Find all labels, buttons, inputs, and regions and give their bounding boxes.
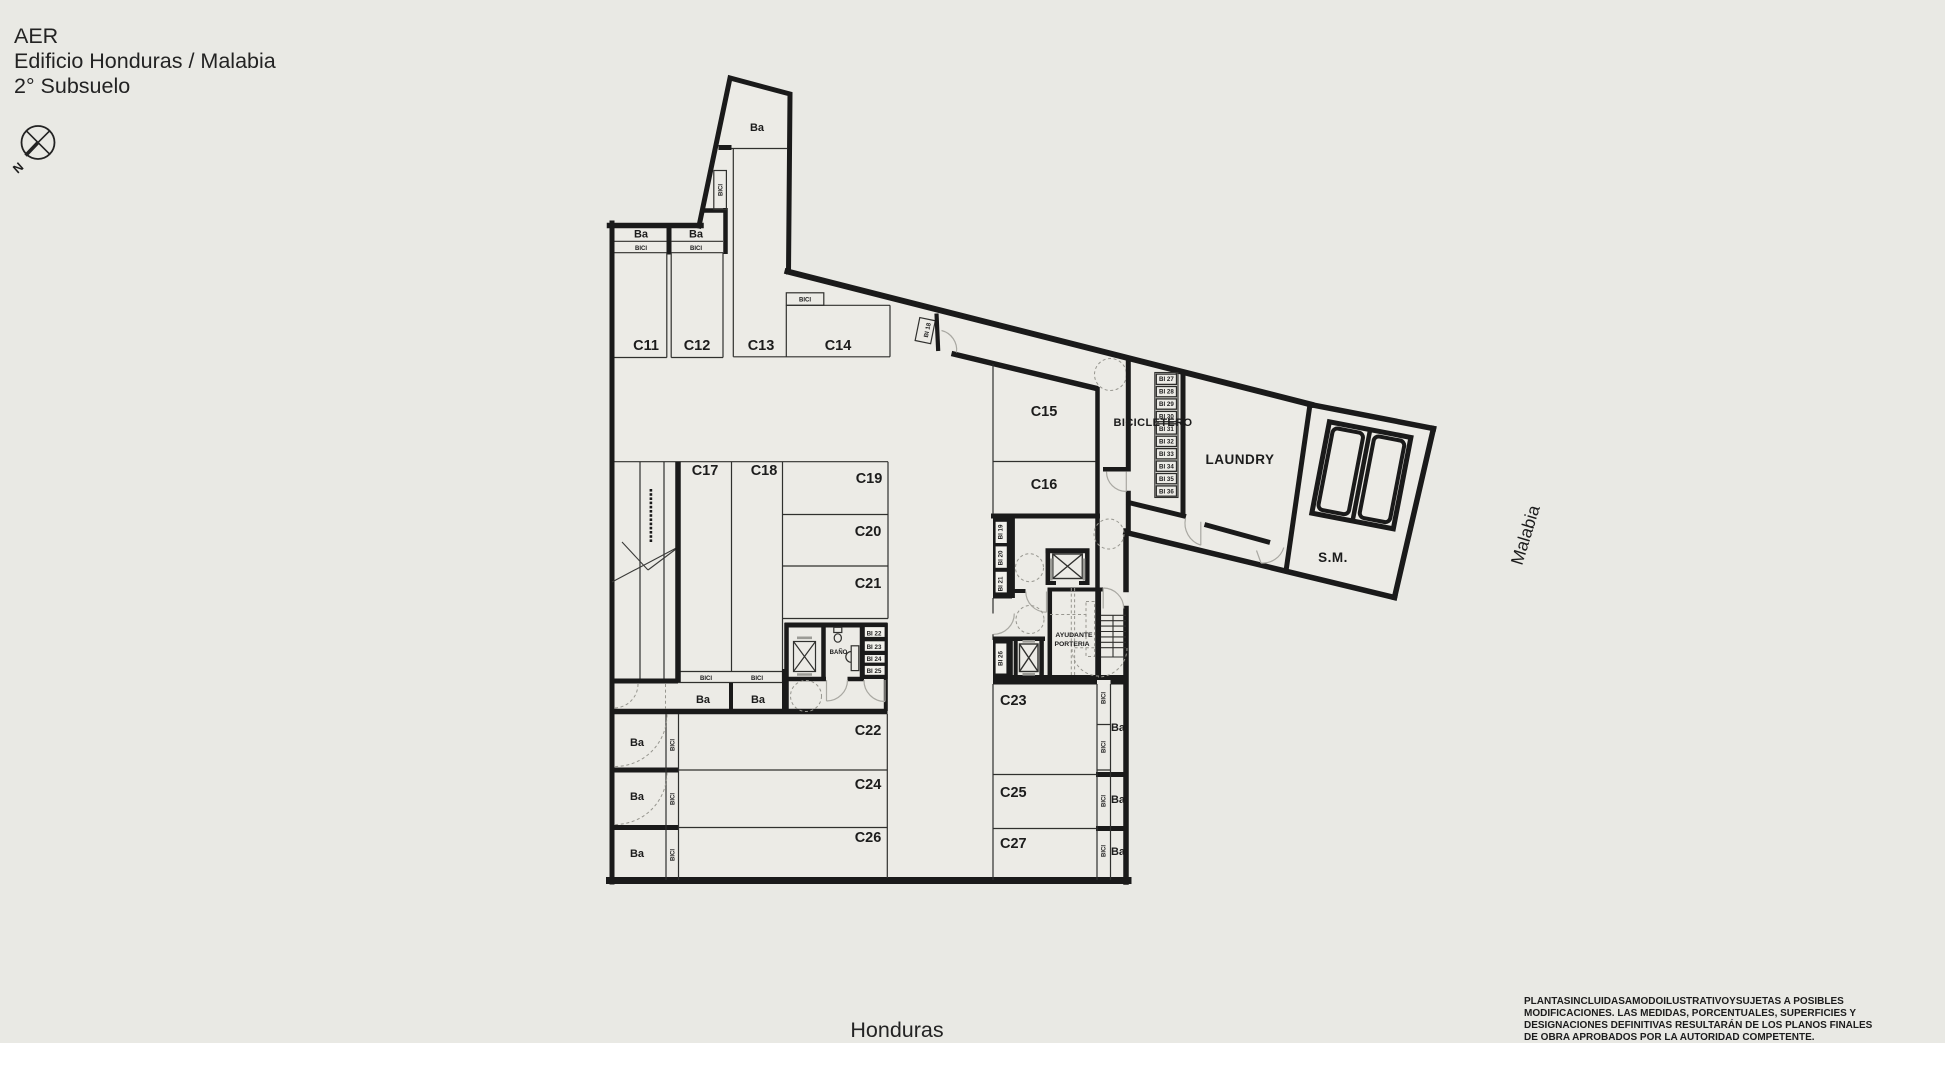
svg-text:DE OBRA APROBADOS POR LA AUTOR: DE OBRA APROBADOS POR LA AUTORIDAD COMPE… <box>1524 1032 1815 1043</box>
svg-text:BI 24: BI 24 <box>867 656 882 663</box>
svg-text:BICI: BICI <box>1102 845 1108 857</box>
svg-text:C15: C15 <box>1031 404 1058 420</box>
svg-text:MODIFICACIONES. LAS MEDIDAS, P: MODIFICACIONES. LAS MEDIDAS, PORCENTUALE… <box>1524 1008 1856 1019</box>
svg-text:BAÑO: BAÑO <box>830 649 848 656</box>
svg-text:BI 36: BI 36 <box>1159 489 1174 496</box>
svg-text:C18: C18 <box>751 463 778 479</box>
svg-text:C22: C22 <box>855 723 882 739</box>
svg-text:BI 19: BI 19 <box>998 524 1005 539</box>
svg-text:Ba: Ba <box>689 229 704 241</box>
svg-text:Ba: Ba <box>630 791 645 803</box>
svg-text:DESIGNACIONES DEFINITIVAS RESU: DESIGNACIONES DEFINITIVAS RESULTARÁN DE … <box>1524 1018 1873 1031</box>
svg-text:BICI: BICI <box>690 246 702 252</box>
svg-text:BI 27: BI 27 <box>1159 376 1174 383</box>
svg-text:C16: C16 <box>1031 477 1058 493</box>
svg-text:BI 26: BI 26 <box>998 651 1005 666</box>
svg-text:C20: C20 <box>855 524 882 540</box>
svg-text:BI 32: BI 32 <box>1159 439 1174 446</box>
svg-text:Ba: Ba <box>1111 846 1126 858</box>
svg-text:C13: C13 <box>748 338 775 354</box>
svg-text:BI 34: BI 34 <box>1159 464 1174 471</box>
svg-text:C26: C26 <box>855 830 882 846</box>
svg-text:BICI: BICI <box>1102 741 1108 753</box>
svg-text:Ba: Ba <box>634 229 649 241</box>
svg-text:BI 20: BI 20 <box>998 550 1005 565</box>
svg-text:S.M.: S.M. <box>1318 550 1348 565</box>
svg-text:C14: C14 <box>825 338 852 354</box>
svg-text:C25: C25 <box>1000 785 1027 801</box>
svg-text:Ba: Ba <box>696 694 711 706</box>
svg-text:LAUNDRY: LAUNDRY <box>1206 452 1275 467</box>
svg-text:BICI: BICI <box>799 298 811 304</box>
svg-text:2° Subsuelo: 2° Subsuelo <box>14 74 130 98</box>
svg-text:C21: C21 <box>855 576 882 592</box>
svg-text:C24: C24 <box>855 777 882 793</box>
svg-text:AER: AER <box>14 24 58 48</box>
svg-text:BI 35: BI 35 <box>1159 476 1174 483</box>
svg-text:Ba: Ba <box>630 737 645 749</box>
svg-text:PORTERIA: PORTERIA <box>1054 641 1089 648</box>
svg-text:BI 25: BI 25 <box>867 668 882 675</box>
svg-text:Ba: Ba <box>1111 722 1126 734</box>
svg-text:BI 29: BI 29 <box>1159 401 1174 408</box>
svg-text:BICI: BICI <box>1102 692 1108 704</box>
svg-text:Ba: Ba <box>1111 794 1126 806</box>
svg-text:BICI: BICI <box>1102 795 1108 807</box>
svg-text:Ba: Ba <box>751 694 766 706</box>
svg-text:BICI: BICI <box>700 676 712 682</box>
svg-text:C23: C23 <box>1000 693 1027 709</box>
svg-text:C19: C19 <box>856 471 883 487</box>
svg-text:BICI: BICI <box>671 793 677 805</box>
svg-text:Ba: Ba <box>750 122 765 134</box>
svg-text:Honduras: Honduras <box>850 1018 943 1042</box>
svg-text:BICICLETERO: BICICLETERO <box>1114 417 1193 429</box>
svg-text:C11: C11 <box>633 338 659 354</box>
svg-text:PLANTASINCLUIDASAMODOILUSTRATI: PLANTASINCLUIDASAMODOILUSTRATIVOYSUJETAS… <box>1524 996 1844 1007</box>
svg-text:BICI: BICI <box>671 849 677 861</box>
svg-text:AYUDANTE: AYUDANTE <box>1055 632 1093 639</box>
svg-text:BICI: BICI <box>751 676 763 682</box>
svg-text:C12: C12 <box>684 338 711 354</box>
svg-text:BI 22: BI 22 <box>867 631 882 638</box>
svg-text:BI 23: BI 23 <box>867 644 882 651</box>
svg-text:BI 33: BI 33 <box>1159 451 1174 458</box>
svg-text:Edificio Honduras / Malabia: Edificio Honduras / Malabia <box>14 49 276 73</box>
svg-text:BICI: BICI <box>635 246 647 252</box>
svg-text:BI 21: BI 21 <box>998 576 1005 591</box>
svg-text:BICI: BICI <box>671 739 677 751</box>
svg-text:Ba: Ba <box>630 848 645 860</box>
svg-text:BICI: BICI <box>719 184 725 196</box>
svg-text:BI 28: BI 28 <box>1159 389 1174 396</box>
svg-text:C17: C17 <box>692 463 719 479</box>
svg-text:C27: C27 <box>1000 836 1027 852</box>
